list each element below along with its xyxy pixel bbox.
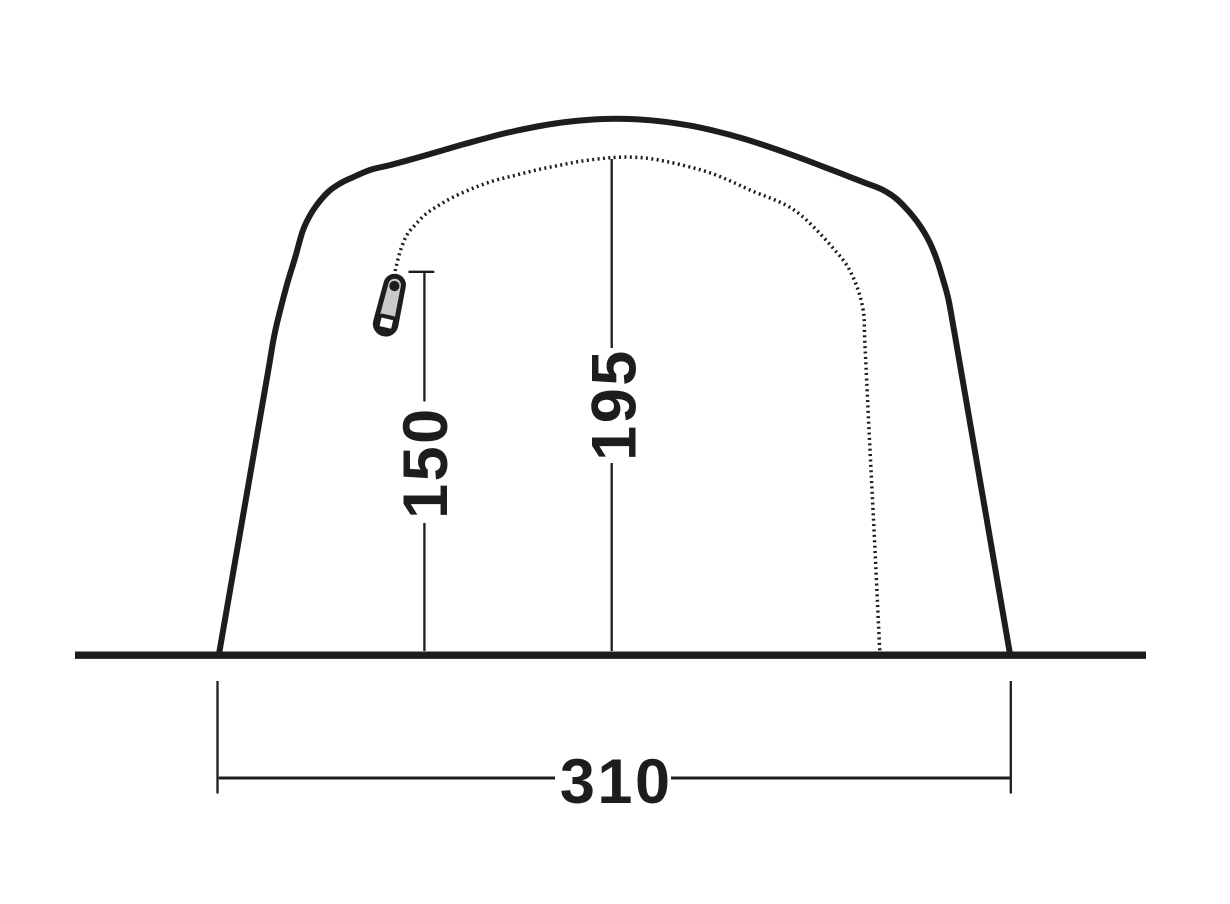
svg-text:150: 150 (391, 406, 461, 519)
svg-text:310: 310 (560, 747, 673, 817)
svg-text:195: 195 (580, 348, 650, 461)
